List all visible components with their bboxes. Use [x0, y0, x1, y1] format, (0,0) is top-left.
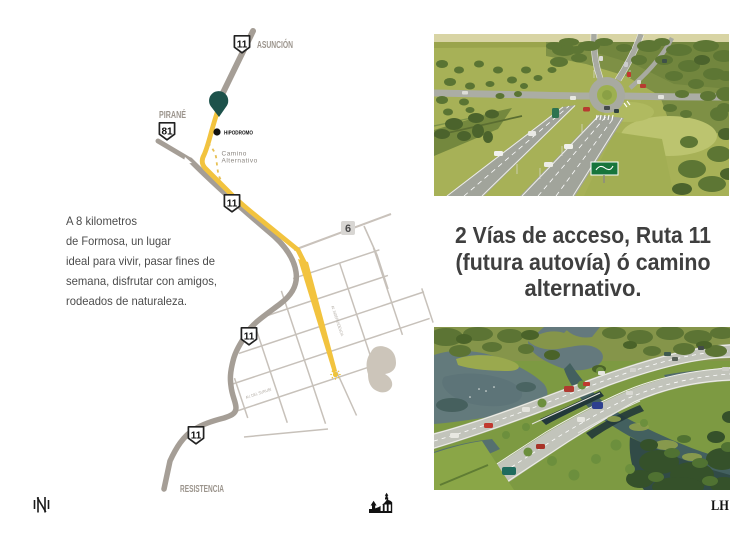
svg-text:2 Vías de acceso, Ruta 11: 2 Vías de acceso, Ruta 11 — [455, 222, 711, 248]
svg-text:ideal para vivir, pasar fines: ideal para vivir, pasar fines de — [66, 255, 215, 268]
svg-text:semana, disfrutar con amigos,: semana, disfrutar con amigos, — [66, 275, 217, 288]
svg-text:11: 11 — [191, 431, 202, 442]
svg-text:rodeados de naturaleza.: rodeados de naturaleza. — [66, 295, 187, 308]
svg-text:PIRANÉ: PIRANÉ — [159, 108, 186, 121]
svg-text:LH: LH — [711, 498, 729, 514]
svg-text:A 8 kilometros: A 8 kilometros — [66, 215, 137, 228]
svg-text:HIPODROMO: HIPODROMO — [224, 130, 253, 136]
svg-text:6: 6 — [345, 223, 351, 235]
svg-text:(futura autovía) ó camino: (futura autovía) ó camino — [456, 249, 711, 275]
svg-text:RESISTENCIA: RESISTENCIA — [180, 483, 224, 495]
svg-text:11: 11 — [237, 40, 248, 51]
svg-text:Camino: Camino — [222, 151, 247, 158]
svg-text:11: 11 — [227, 199, 238, 210]
svg-text:alternativo.: alternativo. — [525, 275, 642, 301]
svg-text:11: 11 — [244, 332, 255, 343]
svg-text:ASUNCIÓN: ASUNCIÓN — [257, 38, 293, 51]
svg-text:de Formosa, un lugar: de Formosa, un lugar — [66, 235, 171, 248]
svg-text:81: 81 — [161, 127, 173, 138]
svg-text:Alternativo: Alternativo — [222, 158, 258, 165]
